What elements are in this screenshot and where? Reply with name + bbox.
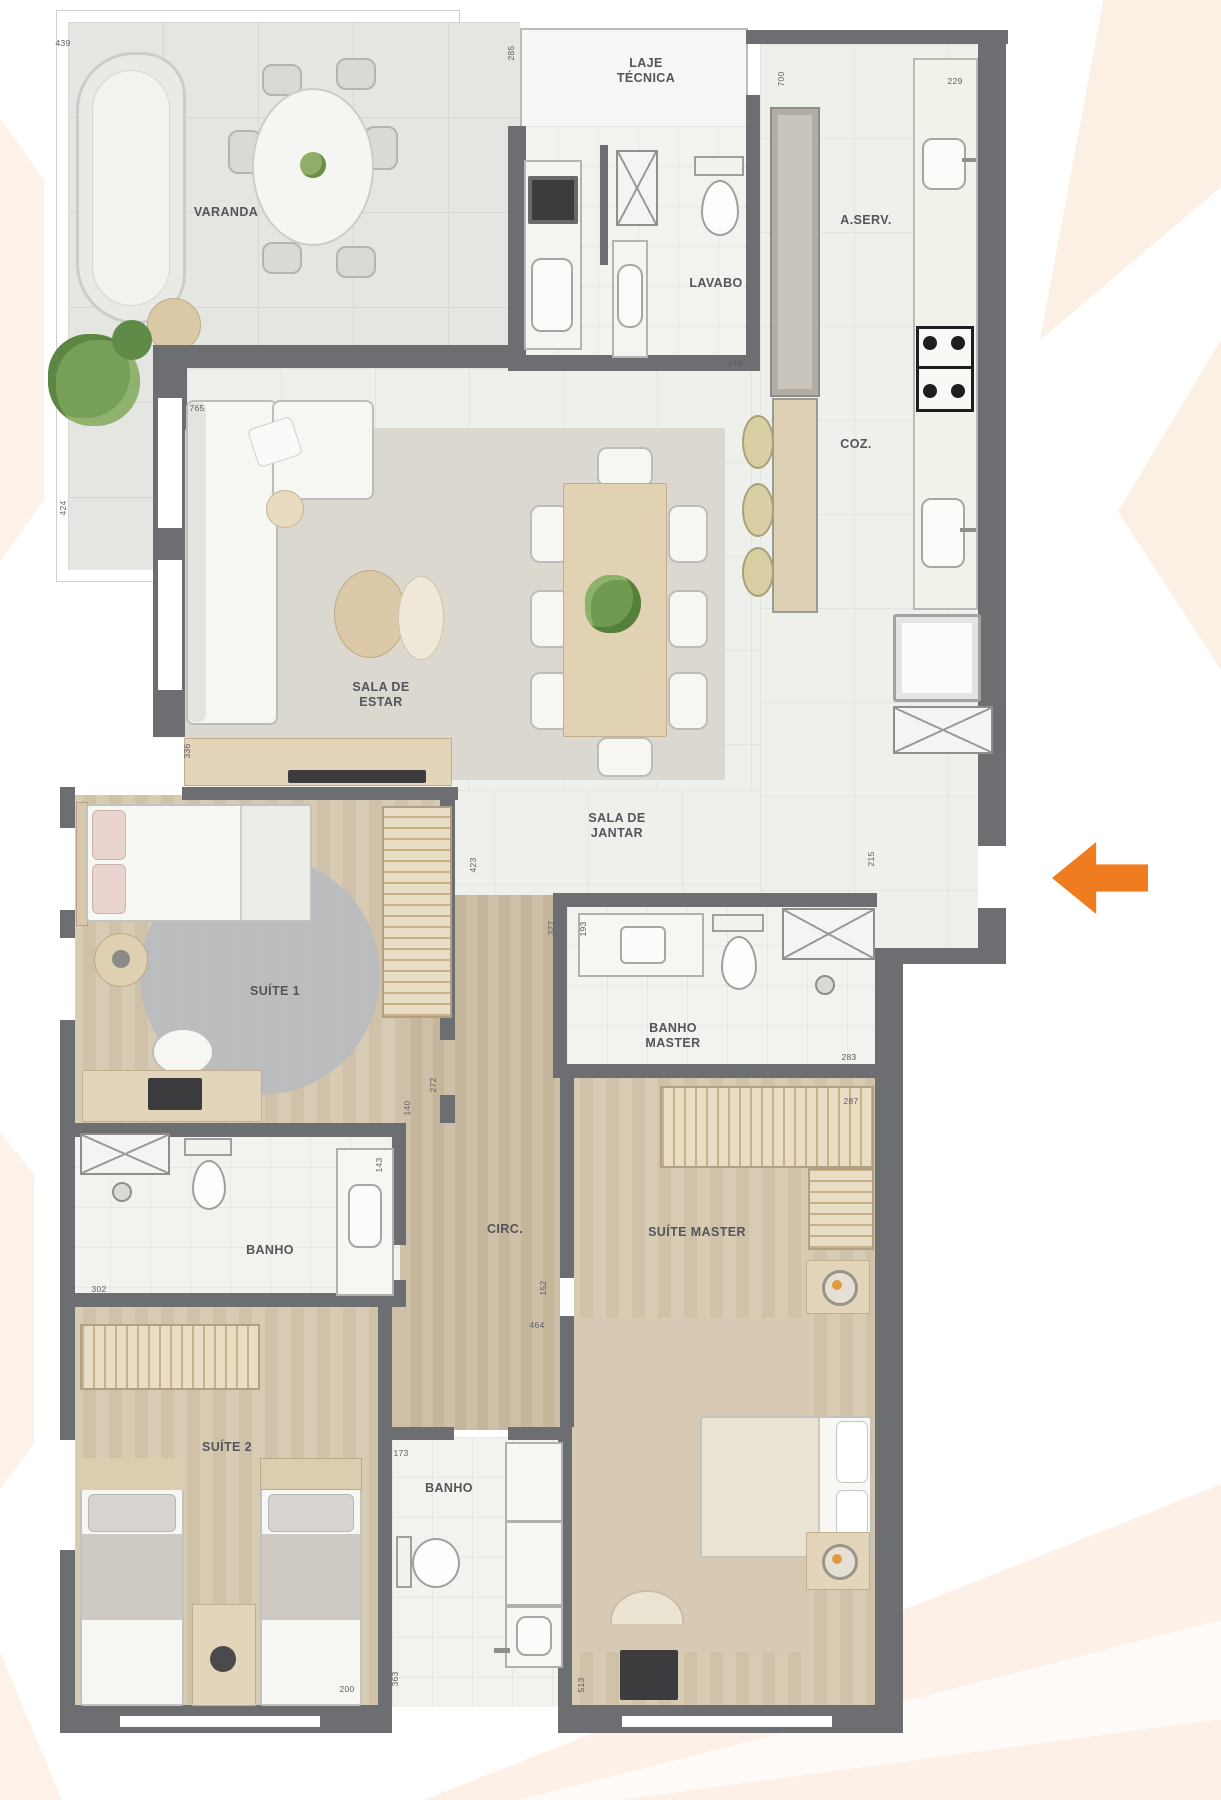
- banho2-bottom-window: [408, 1716, 478, 1727]
- wall-varanda-horizontal: [153, 345, 518, 368]
- dining-chair: [668, 505, 708, 563]
- varanda-glass-door: [158, 398, 182, 528]
- entry-door-opening: [978, 846, 1006, 908]
- stove-divider: [916, 366, 974, 369]
- banho2-toilet-tank: [396, 1536, 412, 1588]
- service-sink-faucet: [962, 158, 976, 162]
- suite1-pillow: [92, 810, 126, 860]
- varanda-chair: [262, 242, 302, 274]
- dim-327: 327: [546, 911, 556, 945]
- dim-336: 336: [182, 734, 192, 768]
- room-label-circ: CIRC.: [475, 1222, 535, 1237]
- lavabo-basin: [617, 264, 643, 328]
- room-label-laje-tecnica: LAJE TÉCNICA: [606, 56, 686, 86]
- suite1-window: [60, 828, 75, 910]
- kitchen-sink: [921, 498, 965, 568]
- suite1-blanket-fold: [240, 806, 310, 920]
- suite1-wardrobe: [382, 806, 452, 1018]
- varanda-glass-door: [158, 560, 182, 690]
- dim-513: 513: [576, 1668, 586, 1702]
- dim-173: 173: [384, 1448, 418, 1458]
- wall-circ-master: [560, 1078, 574, 1278]
- room-label-banho-master: BANHO MASTER: [635, 1021, 711, 1051]
- banho2-faucet: [494, 1648, 510, 1653]
- dim-302: 302: [82, 1284, 116, 1294]
- banho2-sink: [516, 1616, 552, 1656]
- sofa-back-strip: [188, 402, 206, 722]
- decor-chevron-right: [1118, 340, 1221, 670]
- round-pouf: [147, 298, 201, 352]
- dining-chair: [597, 737, 653, 777]
- dim-700: 700: [776, 62, 786, 96]
- dim-146: 146: [718, 358, 752, 368]
- dim-765: 765: [180, 403, 214, 413]
- wall-top-right-outer: [746, 30, 1008, 44]
- bar-counter: [772, 398, 818, 613]
- dim-287: 287: [834, 1096, 868, 1106]
- room-label-coz: COZ.: [826, 437, 886, 452]
- stove-burner: [951, 336, 965, 350]
- room-label-suite1: SUÍTE 1: [230, 984, 320, 999]
- kitchen-sink-faucet: [960, 528, 976, 532]
- washer-room-sink: [531, 258, 573, 332]
- suite2-bed1-pillow: [88, 1494, 176, 1532]
- service-sink: [922, 138, 966, 190]
- dim-140: 140: [402, 1091, 412, 1125]
- dim-152: 152: [538, 1271, 548, 1305]
- banho2-shower: [505, 1442, 563, 1606]
- banho1-toilet-bowl: [192, 1160, 226, 1210]
- room-label-suite2: SUÍTE 2: [182, 1440, 272, 1455]
- suite2-bed1-headboard: [80, 1458, 184, 1490]
- floorplan-canvas: VARANDA LAJE TÉCNICA A.SERV. LAVABO COZ.…: [0, 0, 1221, 1800]
- room-label-sala-jantar: SALA DE JANTAR: [582, 811, 652, 841]
- wall-circ-master-lower: [560, 1316, 574, 1427]
- dim-464: 464: [520, 1320, 554, 1330]
- banho-master-shower-head: [815, 975, 835, 995]
- varanda-chair: [336, 58, 376, 90]
- dim-283: 283: [832, 1052, 866, 1062]
- suite1-lamp: [112, 950, 130, 968]
- master-lamp-1-core: [832, 1280, 842, 1290]
- decor-chevron-left-bottom: [0, 1652, 62, 1800]
- decor-chevron-left-top: [0, 118, 44, 562]
- lavabo-duct: [616, 150, 658, 226]
- wall-left-suites: [60, 787, 75, 1733]
- wall-banho1-right: [392, 1123, 406, 1245]
- banho-master-sink: [620, 926, 666, 964]
- varanda-chair: [336, 246, 376, 278]
- suite2-bed2-blanket: [262, 1534, 360, 1620]
- wall-suite1-top: [182, 787, 458, 800]
- master-lamp-2-core: [832, 1554, 842, 1564]
- plant-small: [112, 320, 152, 360]
- master-tv-console: [620, 1650, 678, 1700]
- stove-burner: [951, 384, 965, 398]
- dining-chair: [668, 590, 708, 648]
- suite2-bed2-headboard: [260, 1458, 362, 1490]
- dim-229: 229: [938, 76, 972, 86]
- wall-lavabo-right: [746, 95, 760, 371]
- suite2-lamp: [210, 1646, 236, 1672]
- wall-suite2-banho2: [378, 1307, 392, 1705]
- master-wardrobe-side: [808, 1168, 874, 1250]
- room-label-banho2: BANHO: [414, 1481, 484, 1496]
- banho1-shower-head: [112, 1182, 132, 1202]
- suite2-bed1-blanket: [82, 1534, 182, 1620]
- curved-sofa-cushion: [92, 70, 170, 306]
- suite2-bed2-pillow: [268, 1494, 354, 1532]
- lavabo-toilet-tank: [694, 156, 744, 176]
- entrance-arrow-icon: [1052, 842, 1148, 914]
- wall-banho2-top: [392, 1427, 454, 1440]
- dining-chair: [597, 447, 653, 487]
- room-label-lavabo: LAVABO: [671, 276, 761, 291]
- master-bottom-window: [622, 1716, 832, 1727]
- dim-215: 215: [866, 842, 876, 876]
- lavabo-toilet-bowl: [701, 180, 739, 236]
- dim-193: 193: [578, 912, 588, 946]
- wall-washer-lavabo: [600, 145, 608, 265]
- dim-423: 423: [468, 848, 478, 882]
- room-label-suite-master: SUÍTE MASTER: [617, 1225, 777, 1240]
- banho2-toilet-bowl: [412, 1538, 460, 1588]
- decor-chevron-left-mid: [0, 1132, 34, 1488]
- banho2-shower-divider: [507, 1520, 561, 1523]
- room-label-a-serv: A.SERV.: [821, 213, 911, 228]
- bar-stool: [742, 415, 774, 469]
- suite1-laptop: [148, 1078, 202, 1110]
- dim-439: 439: [46, 38, 80, 48]
- wall-suite1-right-low: [440, 1095, 455, 1123]
- bar-stool: [742, 483, 774, 537]
- wall-right-suites: [875, 948, 903, 1733]
- banho-master-shower: [782, 908, 875, 960]
- banho-master-toilet-tank: [712, 914, 764, 932]
- decor-chevron-top-right: [1040, 0, 1221, 340]
- suite-master-door-opening: [560, 1278, 574, 1316]
- banho-master-toilet-bowl: [721, 936, 757, 990]
- suite2-wardrobe: [80, 1324, 260, 1390]
- stove-burner: [923, 336, 937, 350]
- coffee-table-crescent: [398, 576, 444, 660]
- suite2-window: [60, 1440, 75, 1550]
- suite1-pillow: [92, 864, 126, 914]
- bar-stool: [742, 547, 774, 597]
- dim-200: 200: [330, 1684, 364, 1694]
- room-label-sala-estar: SALA DE ESTAR: [348, 680, 414, 710]
- banho1-shower: [80, 1133, 170, 1175]
- master-bed-blanket: [702, 1418, 820, 1556]
- dim-363: 363: [390, 1662, 400, 1696]
- coffee-table-round: [334, 570, 406, 658]
- washer-machine: [528, 176, 578, 224]
- dim-143: 143: [374, 1148, 384, 1182]
- dim-424: 424: [58, 491, 68, 525]
- stove-burner: [923, 384, 937, 398]
- tall-cabinet-inner: [778, 115, 812, 389]
- room-label-varanda: VARANDA: [161, 205, 291, 220]
- tv-screen: [288, 770, 426, 783]
- suite1-desk-chair: [152, 1028, 214, 1076]
- dim-272: 272: [428, 1068, 438, 1102]
- side-table-round: [266, 490, 304, 528]
- master-pillow: [836, 1421, 868, 1483]
- dim-285: 285: [506, 36, 516, 70]
- banho1-sink: [348, 1184, 382, 1248]
- dining-chair: [668, 672, 708, 730]
- wall-banho2-top-right: [508, 1427, 572, 1440]
- wall-banho-master-bottom: [553, 1064, 877, 1078]
- room-label-banho1: BANHO: [235, 1243, 305, 1258]
- fridge: [893, 614, 981, 702]
- duct-shaft: [893, 706, 993, 754]
- suite1-window: [60, 938, 75, 1020]
- wall-banho-master-top: [553, 893, 877, 907]
- suite2-bottom-window: [120, 1716, 320, 1727]
- varanda-table-centerpiece: [300, 152, 326, 178]
- banho1-toilet-tank: [184, 1138, 232, 1156]
